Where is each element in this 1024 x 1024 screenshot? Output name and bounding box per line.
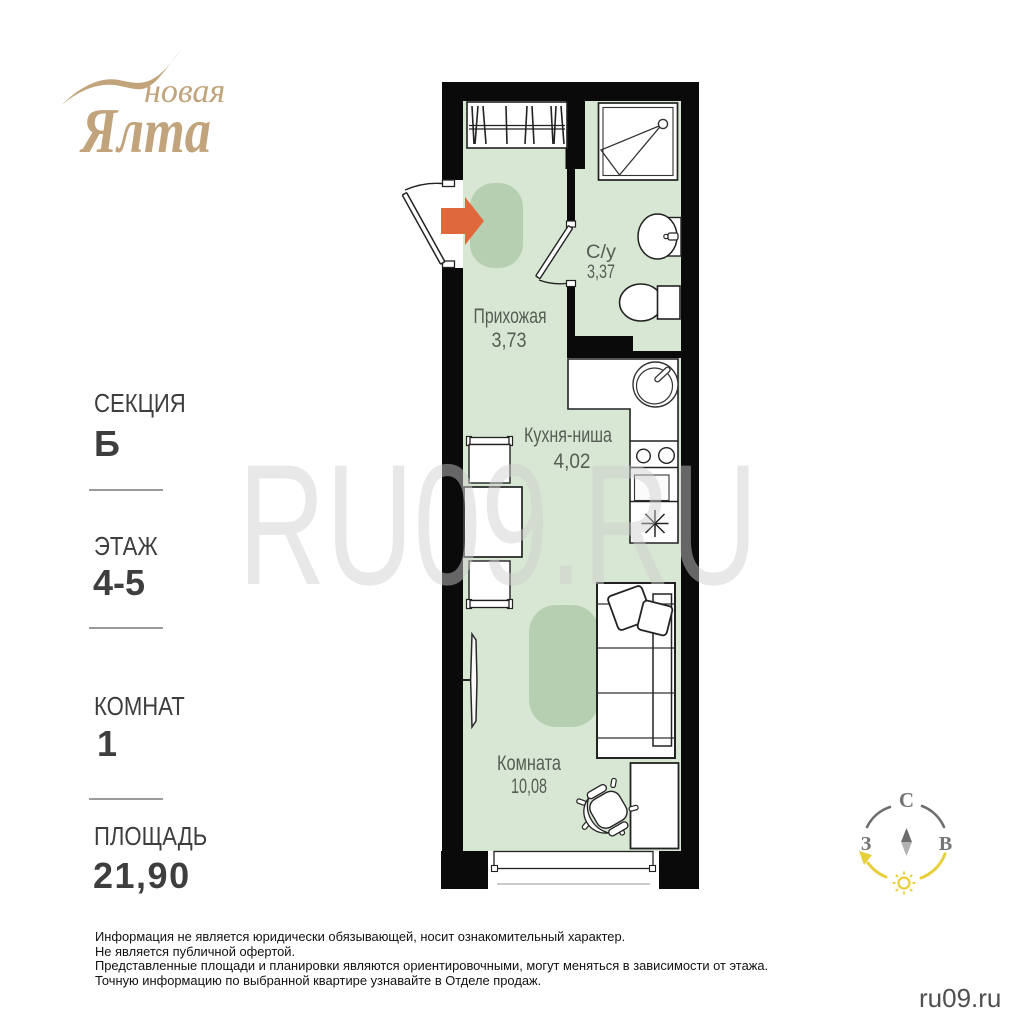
svg-text:RU09.RU: RU09.RU [238, 429, 758, 621]
svg-text:В: В [939, 833, 952, 855]
svg-text:З: З [861, 833, 872, 855]
svg-text:С: С [899, 788, 914, 812]
